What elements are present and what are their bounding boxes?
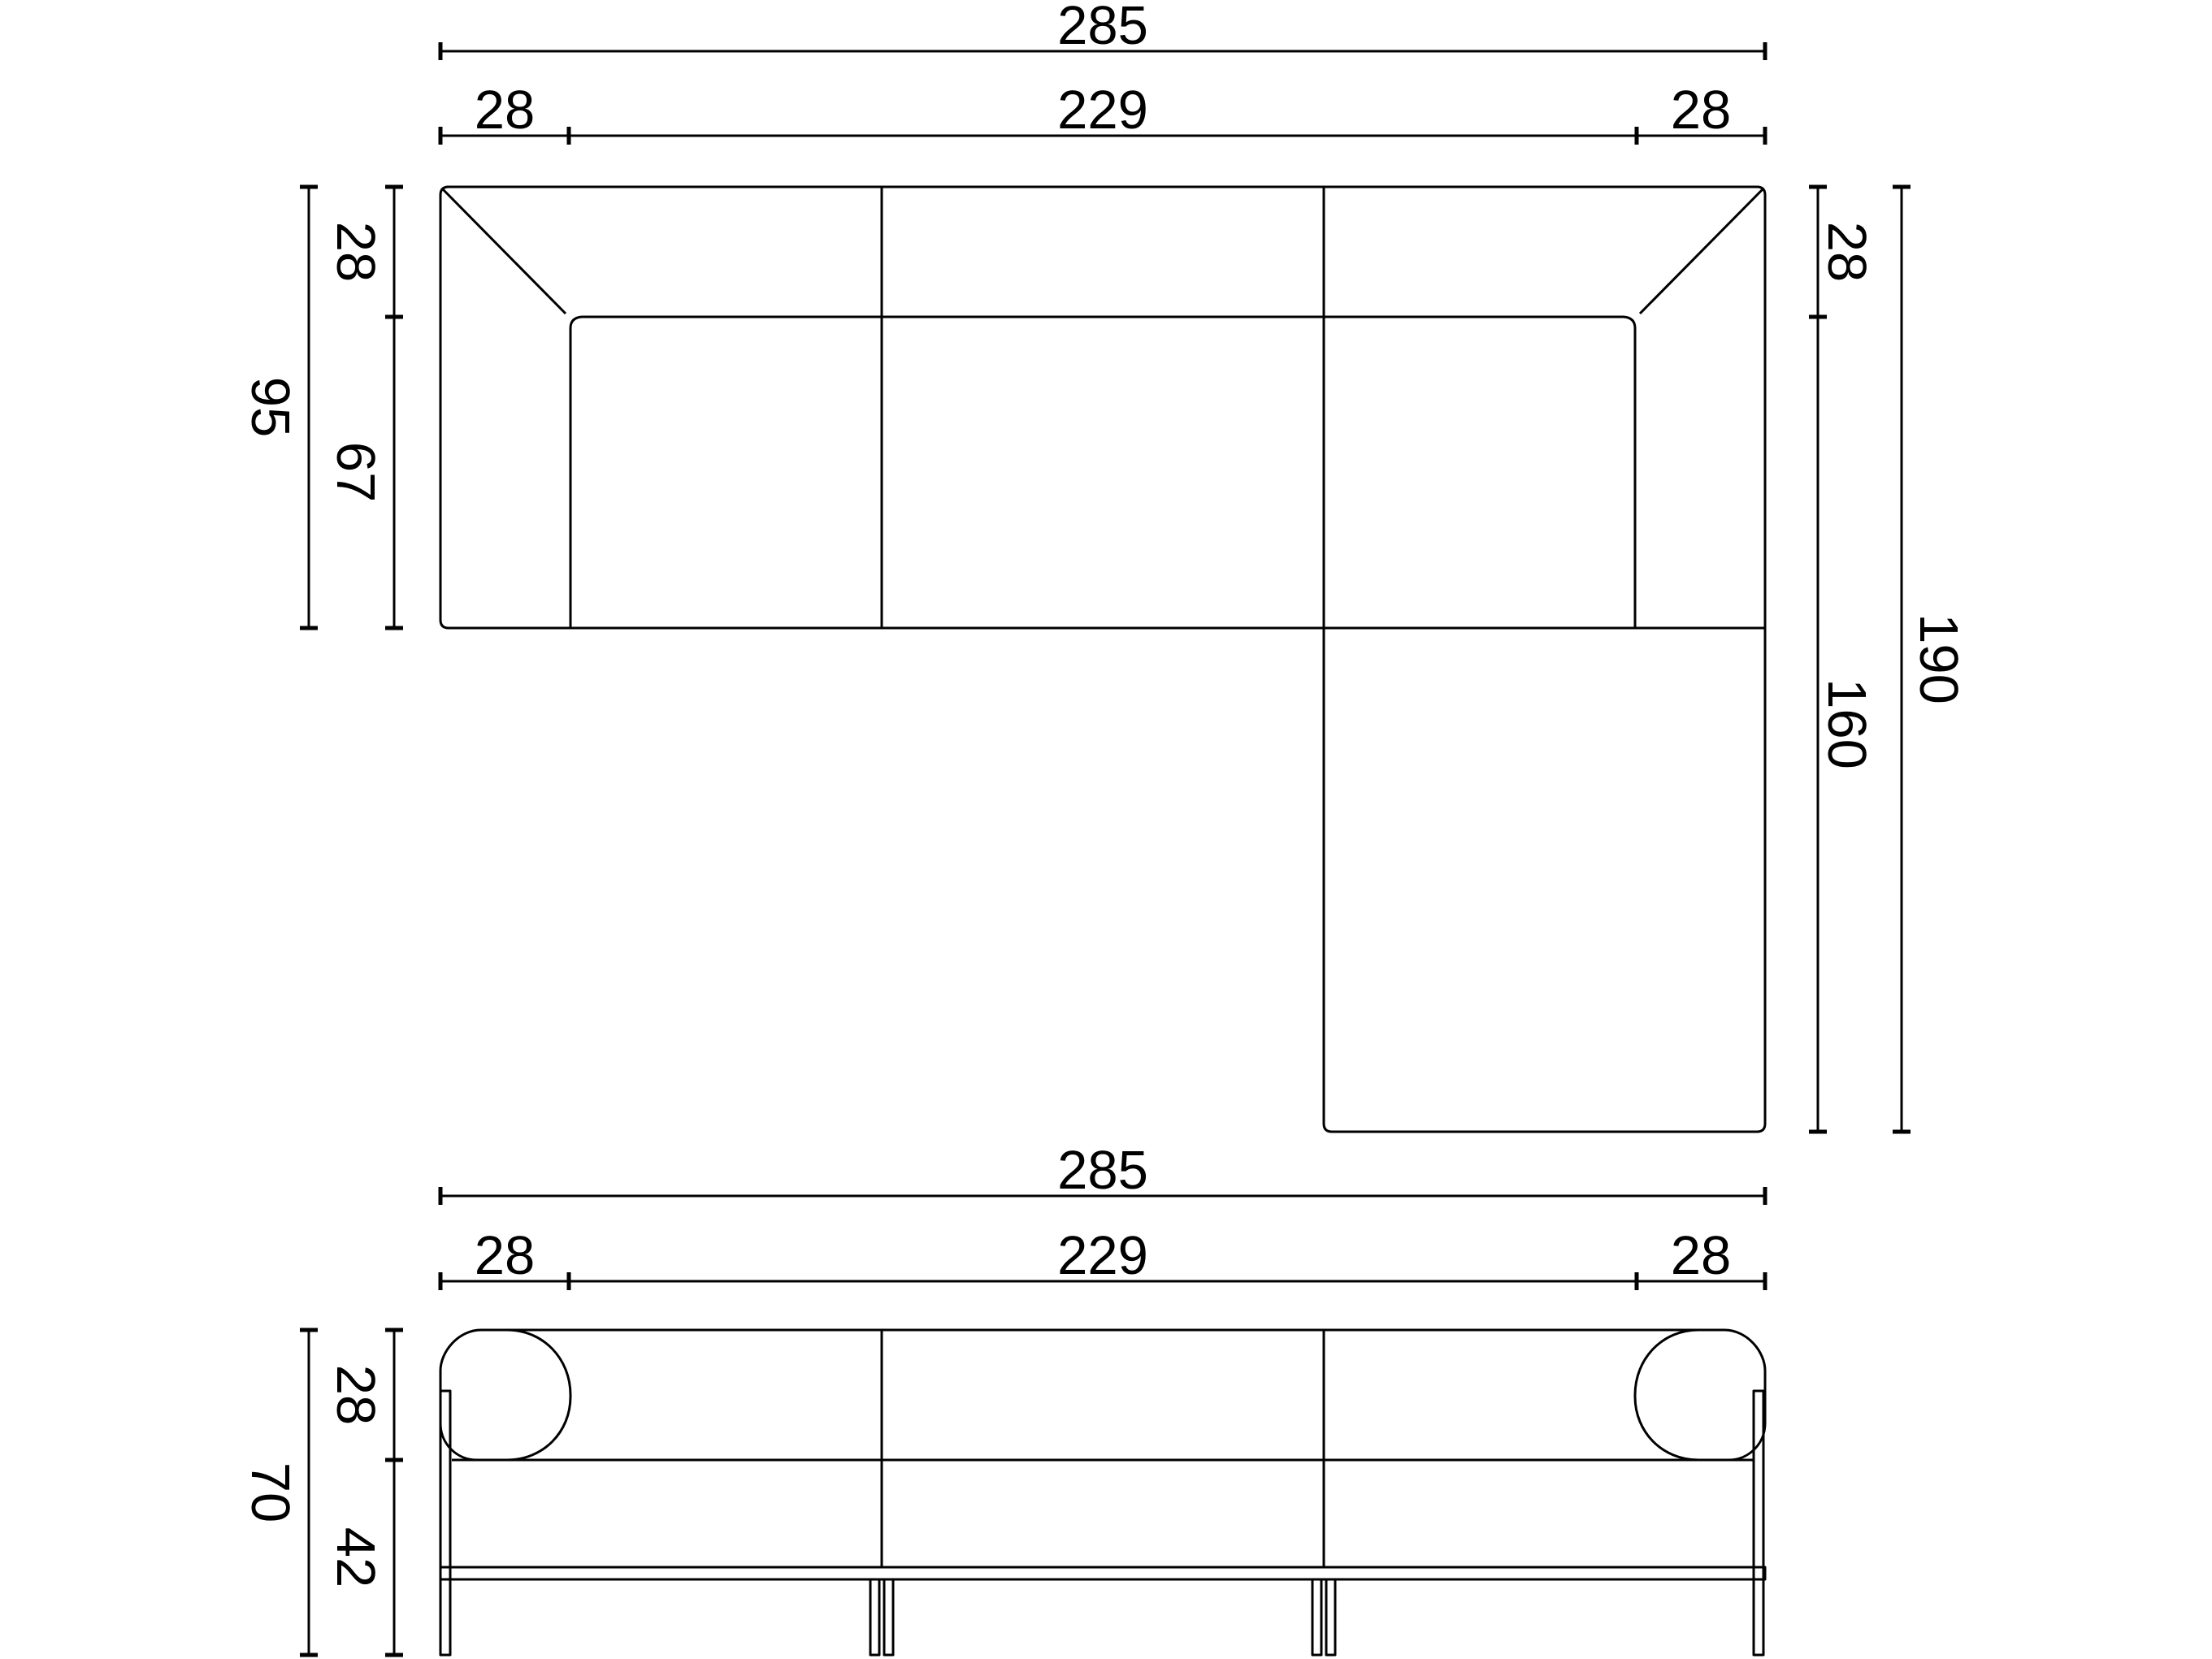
dim-label-plan-total-depth: 190: [1908, 613, 1969, 704]
dim-label-plan-depth-overall: 95: [240, 377, 301, 438]
dim-label-plan-seat-depth: 67: [325, 442, 386, 503]
dim-label-plan-inner-span: 229: [1057, 80, 1148, 141]
right-arm-bolster: [1635, 1330, 1765, 1460]
base-rail: [440, 1567, 1765, 1579]
dim-label-front-left-armrest: 28: [475, 1225, 536, 1286]
dim-label-plan-right-backrest: 28: [1816, 222, 1877, 283]
middle-leg: [1312, 1579, 1321, 1655]
front-view-elevation: [440, 1330, 1765, 1655]
left-armrest-diagonal: [443, 189, 566, 314]
middle-leg: [870, 1579, 879, 1655]
left-arm-bolster: [440, 1330, 570, 1460]
top-view-plan: [440, 187, 1765, 1132]
dim-label-plan-left-armrest: 28: [475, 80, 536, 141]
dim-label-plan-chaise-length: 160: [1816, 678, 1877, 769]
backrest-armrest-inner-line: [570, 317, 1635, 628]
middle-leg: [884, 1579, 893, 1655]
dim-label-plan-backrest-depth: 28: [325, 222, 386, 283]
middle-leg: [1326, 1579, 1335, 1655]
dim-label-plan-right-armrest: 28: [1671, 80, 1732, 141]
dim-label-plan-overall-width: 285: [1057, 0, 1148, 56]
dim-label-front-overall-height: 70: [240, 1462, 301, 1523]
right-armrest-diagonal: [1640, 189, 1763, 314]
front-view-dimensions: 285 28 229 28 70 28 42: [240, 1140, 1765, 1655]
dim-label-front-backrest-height: 28: [325, 1365, 386, 1426]
right-frame-leg: [1754, 1391, 1763, 1655]
dim-label-front-right-armrest: 28: [1671, 1225, 1732, 1286]
dim-label-front-inner-span: 229: [1057, 1225, 1148, 1286]
dim-label-front-overall-width: 285: [1057, 1140, 1148, 1201]
sofa-dimension-drawing: 285 28 229 28 95 28 67 28 160 190: [0, 0, 2212, 1659]
dim-label-front-base-height: 42: [325, 1527, 386, 1588]
drawing-canvas: 285 28 229 28 95 28 67 28 160 190: [0, 0, 2212, 1659]
sofa-plan-outline: [440, 187, 1765, 1132]
top-view-dimensions: 285 28 229 28 95 28 67 28 160 190: [240, 0, 1969, 1132]
